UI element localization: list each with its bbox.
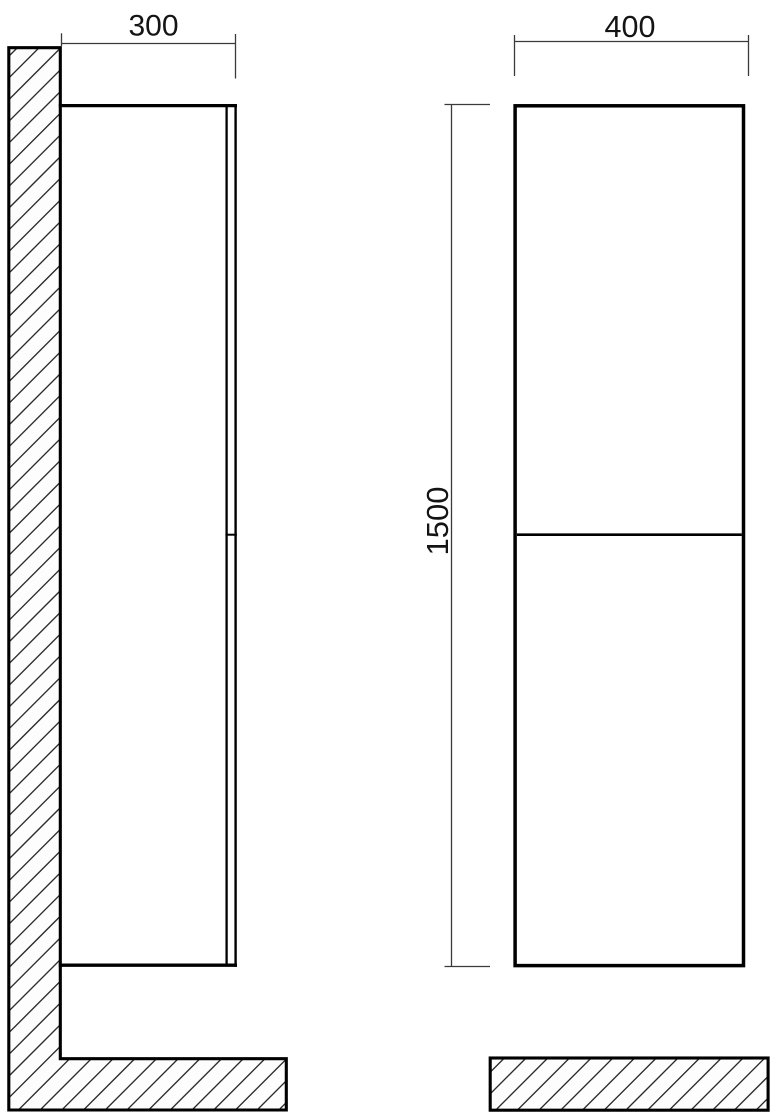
svg-text:400: 400 xyxy=(605,10,656,44)
svg-text:1500: 1500 xyxy=(420,487,455,556)
svg-text:300: 300 xyxy=(128,10,178,43)
